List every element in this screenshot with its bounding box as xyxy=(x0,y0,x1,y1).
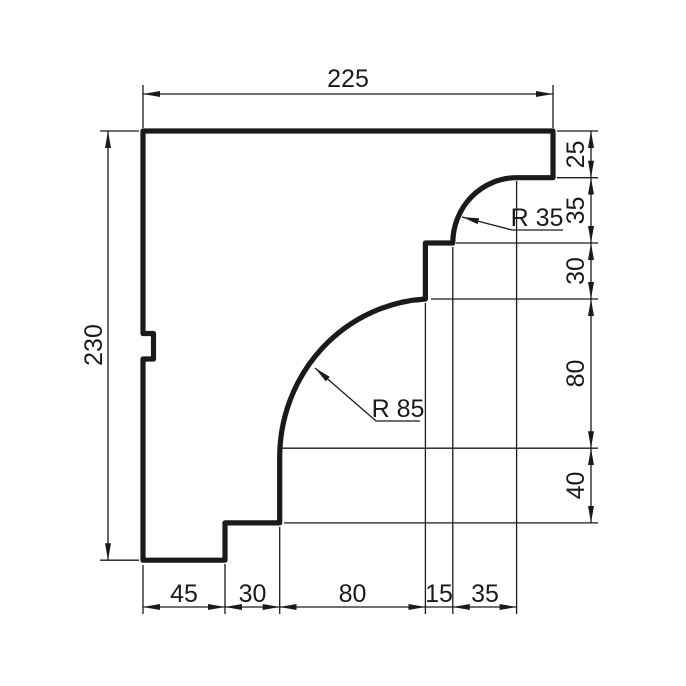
dim-label-bottom-80: 80 xyxy=(339,580,367,608)
dim-label-bottom-45: 45 xyxy=(170,580,198,608)
dim-label-bottom-35: 35 xyxy=(471,580,499,608)
dim-label-right-30: 30 xyxy=(562,257,590,285)
dim-label-left-height: 230 xyxy=(80,324,108,366)
dim-label-right-80: 80 xyxy=(562,360,590,388)
dim-label-top-width: 225 xyxy=(327,65,369,93)
radius-label-r35: R 35 xyxy=(511,204,564,232)
technical-drawing: 225 230 25 35 30 80 40 45 30 80 15 35 R … xyxy=(0,0,686,686)
dim-label-right-25: 25 xyxy=(562,141,590,169)
dim-label-bottom-15: 15 xyxy=(425,580,453,608)
dim-label-right-40: 40 xyxy=(562,472,590,500)
dim-label-bottom-30: 30 xyxy=(239,580,267,608)
dim-label-right-35: 35 xyxy=(562,197,590,225)
radius-label-r85: R 85 xyxy=(372,395,425,423)
